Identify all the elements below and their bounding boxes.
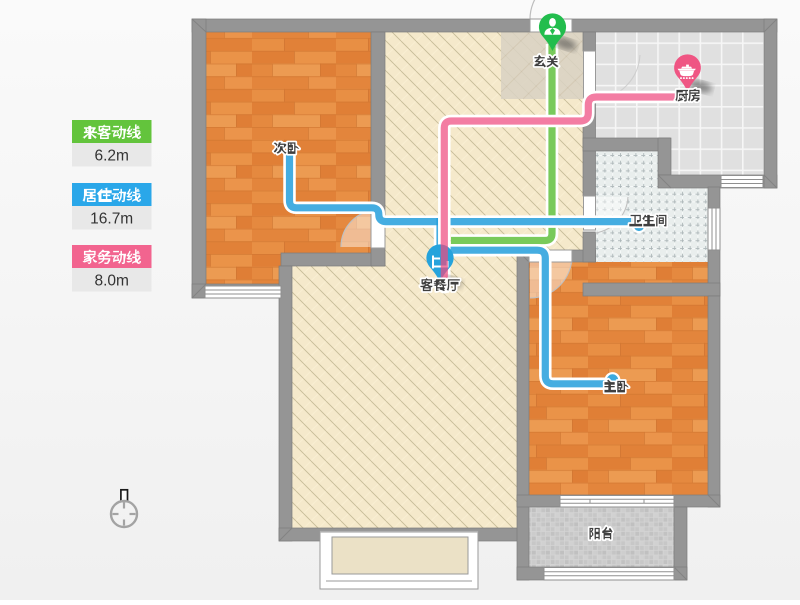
- svg-text:8.0m: 8.0m: [94, 273, 128, 290]
- svg-text:6.2m: 6.2m: [94, 148, 128, 165]
- svg-text:16.7m: 16.7m: [90, 211, 133, 228]
